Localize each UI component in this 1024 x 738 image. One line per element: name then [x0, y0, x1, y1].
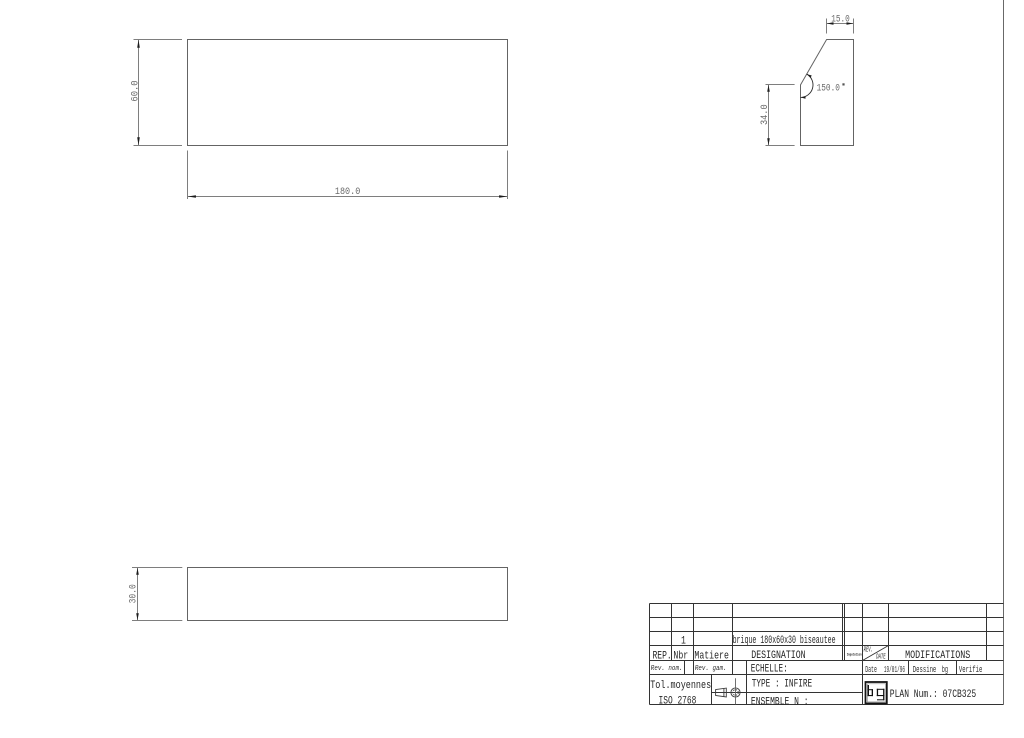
svg-text:MODIFICATIONS: MODIFICATIONS [905, 650, 970, 662]
svg-text:REV.: REV. [864, 647, 873, 655]
svg-text:1: 1 [681, 636, 686, 648]
svg-text:PLAN Num.: 07CB325: PLAN Num.: 07CB325 [890, 689, 976, 701]
svg-text:DATE: DATE [876, 654, 886, 662]
svg-text:Rev. nom.: Rev. nom. [651, 665, 683, 673]
svg-text:60.0: 60.0 [130, 80, 142, 101]
svg-text:DESIGNATION: DESIGNATION [751, 650, 805, 662]
svg-text:Verifie: Verifie [959, 664, 983, 675]
svg-text:Dessine: Dessine [913, 664, 937, 675]
svg-text:ISO 2768: ISO 2768 [659, 696, 697, 708]
svg-text:Rev. gam.: Rev. gam. [695, 665, 727, 673]
svg-text:Tol.moyennes: Tol.moyennes [650, 680, 711, 692]
svg-text:150.0: 150.0 [817, 83, 840, 95]
svg-text:30.0: 30.0 [128, 584, 140, 603]
svg-text:Matiere: Matiere [694, 650, 729, 662]
svg-text:bg: bg [942, 664, 948, 675]
svg-text:34.0: 34.0 [759, 104, 771, 125]
svg-text:Imputation: Imputation [847, 652, 862, 657]
svg-text:Nbr: Nbr [673, 650, 688, 662]
svg-text:ENSEMBLE N :: ENSEMBLE N : [751, 696, 809, 708]
svg-text:180.0: 180.0 [335, 186, 360, 198]
svg-text:REP.: REP. [653, 650, 672, 662]
svg-text:ECHELLE:: ECHELLE: [751, 664, 788, 676]
svg-text:15.0: 15.0 [831, 14, 850, 26]
svg-text:Date: Date [865, 664, 877, 675]
svg-text:TYPE : INFIRE: TYPE : INFIRE [752, 678, 813, 690]
svg-text:19/01/96: 19/01/96 [884, 664, 905, 675]
svg-text:brique 180x60x30 biseautee: brique 180x60x30 biseautee [733, 635, 836, 647]
